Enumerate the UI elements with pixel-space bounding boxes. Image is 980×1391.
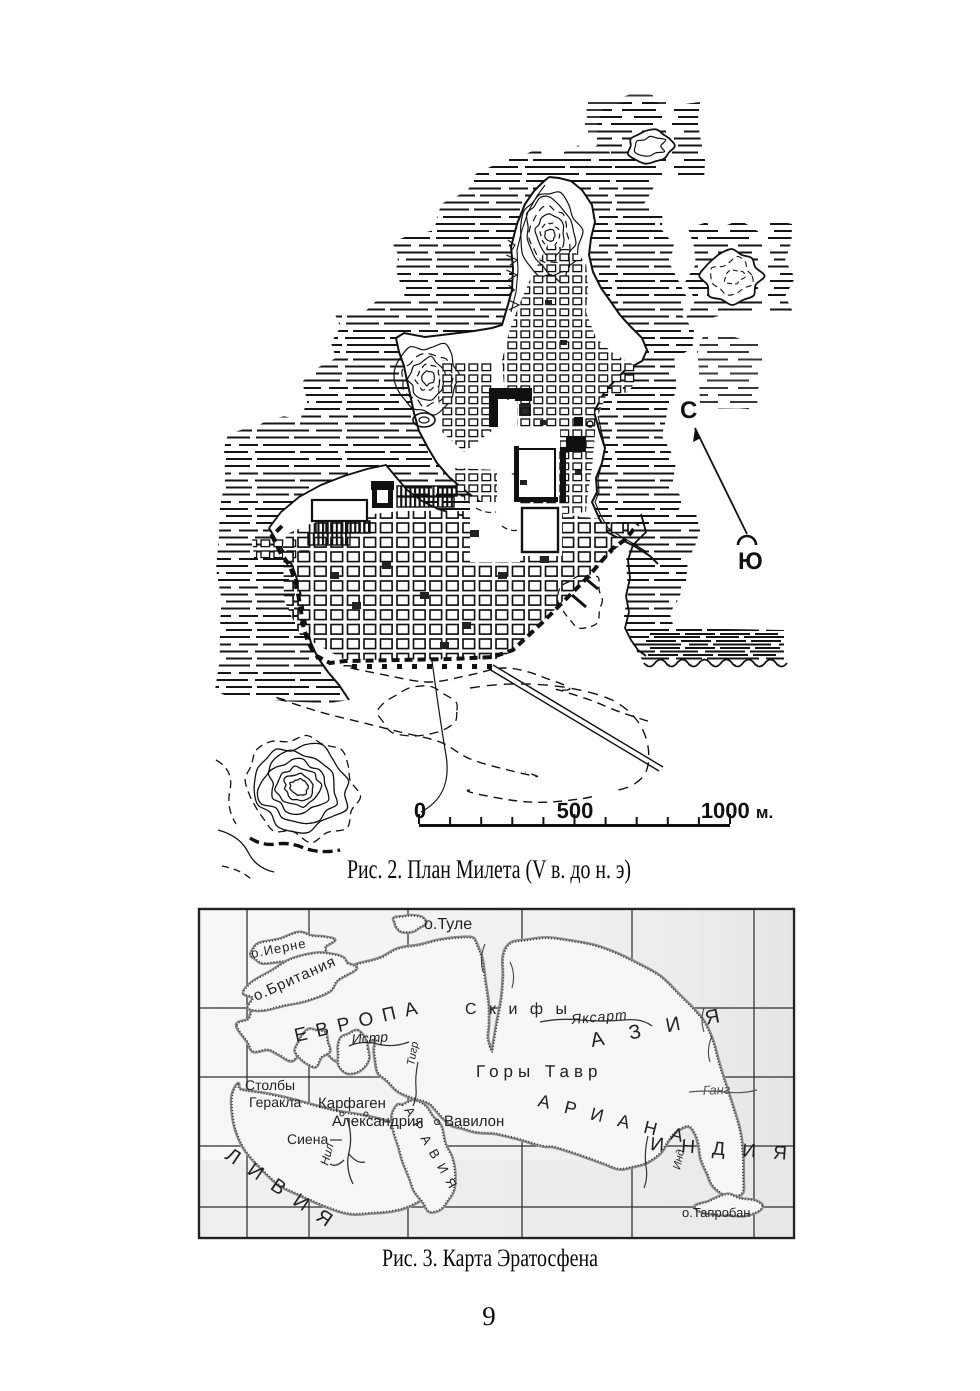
svg-text:C: C: [680, 397, 697, 424]
svg-text:С к и ф ы: С к и ф ы: [465, 1001, 571, 1018]
svg-text:Рис. 3. Карта Эратосфена: Рис. 3. Карта Эратосфена: [382, 1245, 598, 1272]
svg-text:0: 0: [414, 798, 426, 823]
svg-text:Ю: Ю: [738, 548, 763, 575]
svg-text:Столбы: Столбы: [245, 1077, 295, 1093]
svg-text:Ганг: Ганг: [702, 1082, 731, 1098]
svg-text:Рис. 2. План Милета (V в. до н: Рис. 2. План Милета (V в. до н. э): [347, 854, 631, 884]
svg-text:о.Тапробан: о.Тапробан: [682, 1205, 751, 1220]
svg-text:Геракла: Геракла: [249, 1094, 301, 1110]
svg-text:Карфаген: Карфаген: [318, 1095, 386, 1112]
svg-text:Вавилон: Вавилон: [444, 1113, 504, 1130]
svg-text:Горы Тавр: Горы Тавр: [476, 1062, 602, 1081]
svg-text:о.Туле: о.Туле: [424, 916, 472, 933]
svg-text:9: 9: [482, 1301, 496, 1331]
svg-text:500: 500: [557, 798, 594, 823]
svg-text:Истр: Истр: [351, 1028, 389, 1047]
